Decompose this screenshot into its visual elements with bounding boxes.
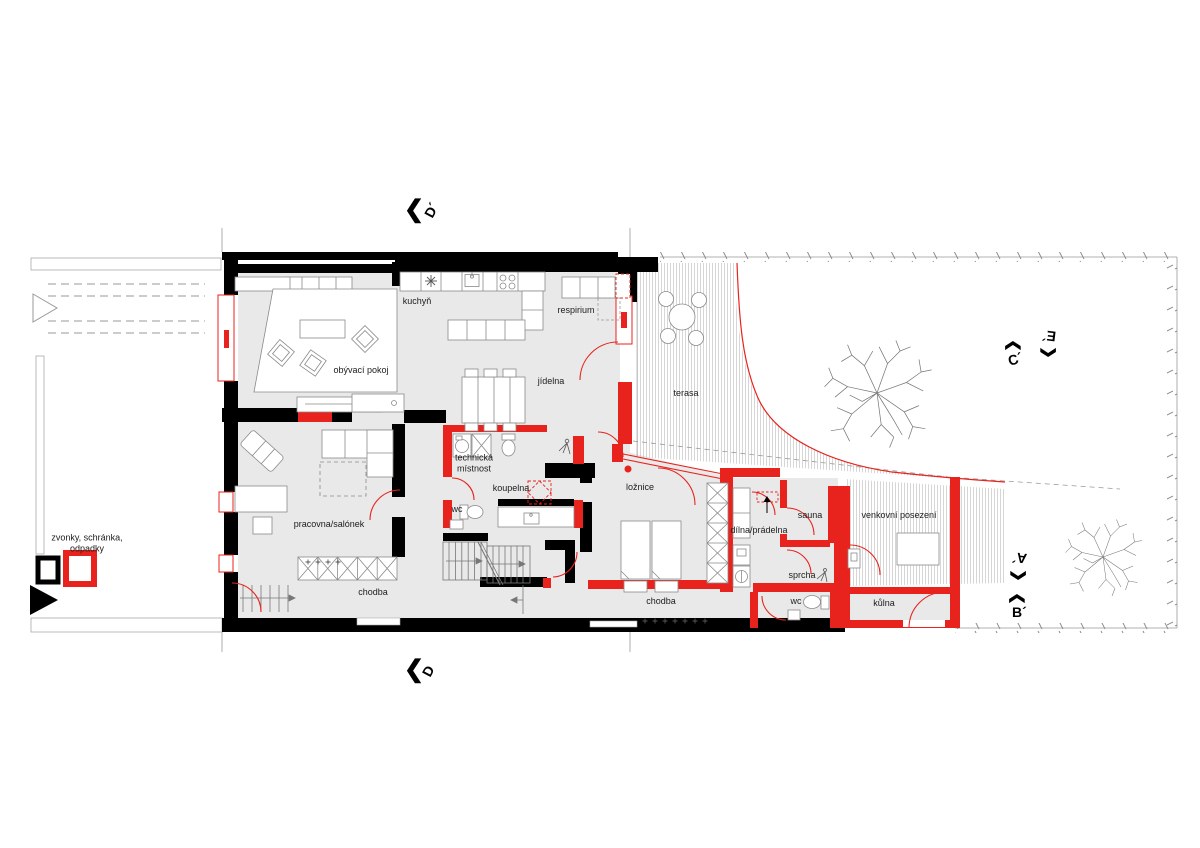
wardrobe-bedroom <box>707 483 728 583</box>
red-dot <box>625 466 632 473</box>
window-gap-south2 <box>590 621 637 627</box>
bed <box>621 521 650 579</box>
toilet-wc-right <box>804 596 830 610</box>
entry-arrow-icon <box>30 585 58 615</box>
coffee-table <box>300 320 345 338</box>
section-label-b: B´ <box>1012 604 1027 620</box>
street-arrow-outline-icon <box>33 294 57 322</box>
mailbox-black-square <box>38 558 58 582</box>
section-arrow-icon-b: ❮ <box>1010 592 1025 605</box>
section-label-a: A´ <box>1011 549 1028 567</box>
outdoor-table <box>897 533 939 565</box>
section-arrow-icon-a: ❮ <box>1010 569 1025 582</box>
bed <box>652 521 681 579</box>
toilet-wc-left <box>460 505 483 519</box>
sink-wc-left <box>450 520 463 529</box>
desk <box>235 486 287 512</box>
terrace-table <box>669 304 695 330</box>
dining-table <box>462 377 525 423</box>
floor-plan-drawing <box>0 0 1200 848</box>
toilet-koupelna <box>502 434 515 456</box>
floor-plan-page: kuchyň obývací pokoj respirium jídelna t… <box>0 0 1200 848</box>
street-area <box>30 258 222 632</box>
mailbox-red-square <box>66 553 94 584</box>
wardrobe-left <box>298 557 397 580</box>
section-arrow-icon-e: ❮ <box>1040 346 1055 359</box>
sink-wc-right <box>788 610 800 620</box>
window-gap-south1 <box>357 618 400 625</box>
section-label-e: E´ <box>1041 327 1057 345</box>
